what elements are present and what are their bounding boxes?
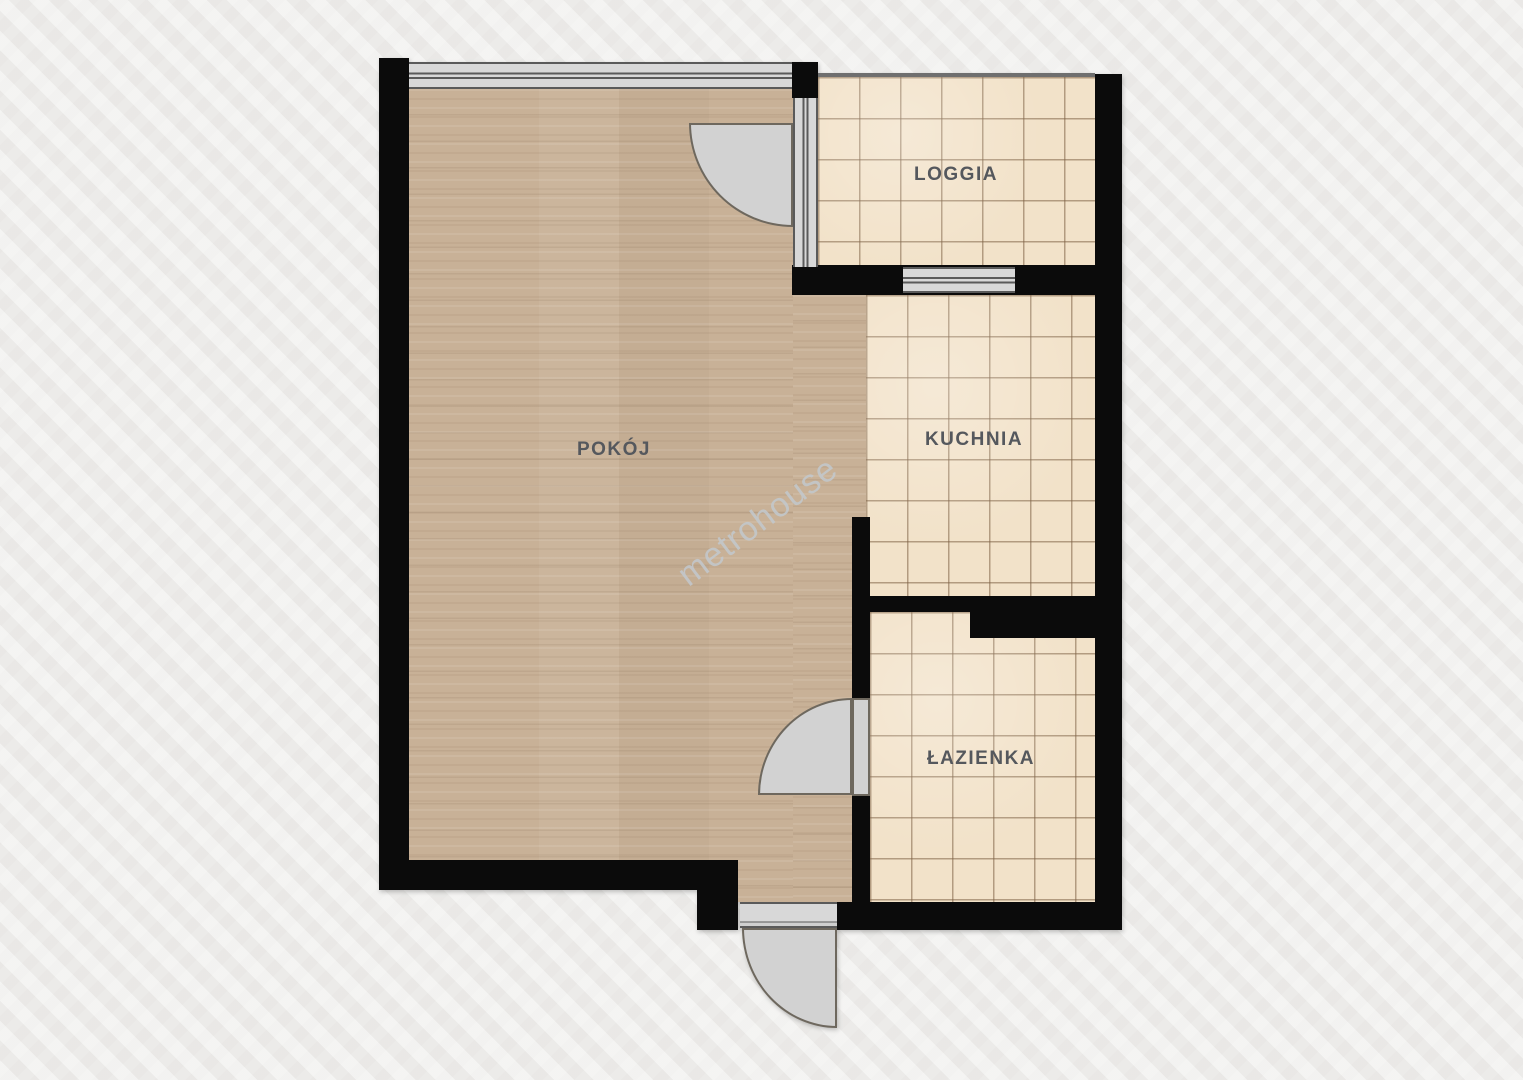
window-pokoj-top: [409, 62, 792, 89]
label-pokoj: POKÓJ: [577, 439, 651, 461]
wall-kitchen-stub: [852, 517, 870, 597]
wall-entry-step: [697, 860, 738, 930]
label-loggia: LOGGIA: [914, 164, 998, 186]
wall-bathroom-left-upper: [852, 612, 870, 698]
window-balcony-door: [793, 98, 818, 267]
label-kuchnia: KUCHNIA: [925, 429, 1023, 451]
wall-kitchen-bathroom: [852, 596, 1095, 612]
entry-door-swing: [742, 928, 837, 1028]
bathroom-door-panel: [852, 698, 870, 796]
wall-pokoj-bottom: [379, 860, 738, 890]
wall-right: [1095, 74, 1122, 930]
room-pokoj-floor: [738, 860, 793, 902]
floor-plan: metrohouse POKÓJ LOGGIA KUCHNIA ŁAZIENKA: [0, 0, 1523, 1080]
entry-door-threshold: [740, 902, 837, 928]
loggia-open-edge: [818, 73, 1095, 77]
label-lazienka: ŁAZIENKA: [927, 748, 1035, 770]
wall-bottom-right: [837, 902, 1122, 930]
wall-bathroom-left-lower: [852, 796, 870, 902]
wall-left: [379, 58, 409, 890]
window-kitchen: [903, 267, 1015, 293]
wall-bathroom-notch: [970, 612, 1095, 638]
wall-top-right-stub: [792, 62, 818, 98]
